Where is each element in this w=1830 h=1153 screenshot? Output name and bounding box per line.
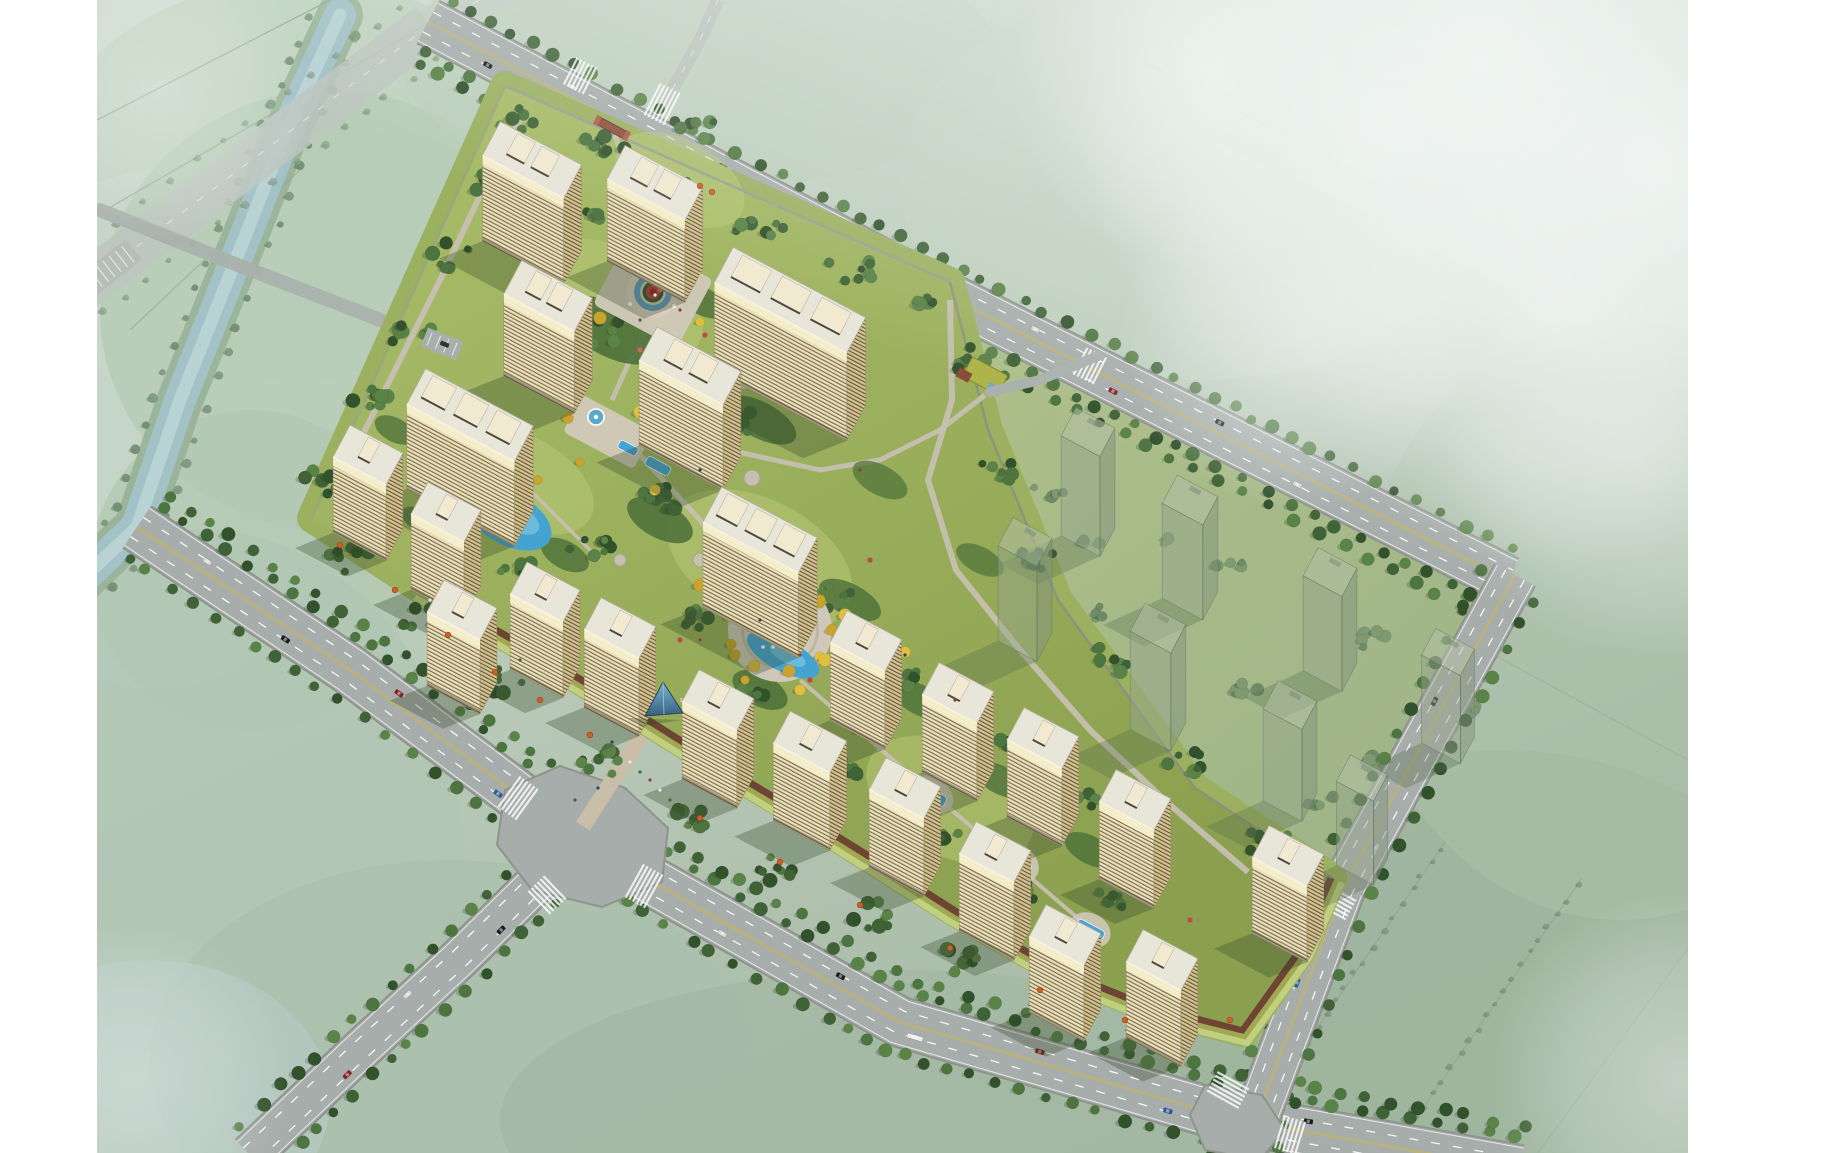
page-margin xyxy=(0,0,97,1153)
rendering-canvas xyxy=(0,0,1830,1153)
cloud-haze xyxy=(1120,150,1480,510)
aerial-rendering xyxy=(0,0,1830,1153)
haze xyxy=(0,0,1830,1153)
page-margin xyxy=(1688,0,1830,1153)
